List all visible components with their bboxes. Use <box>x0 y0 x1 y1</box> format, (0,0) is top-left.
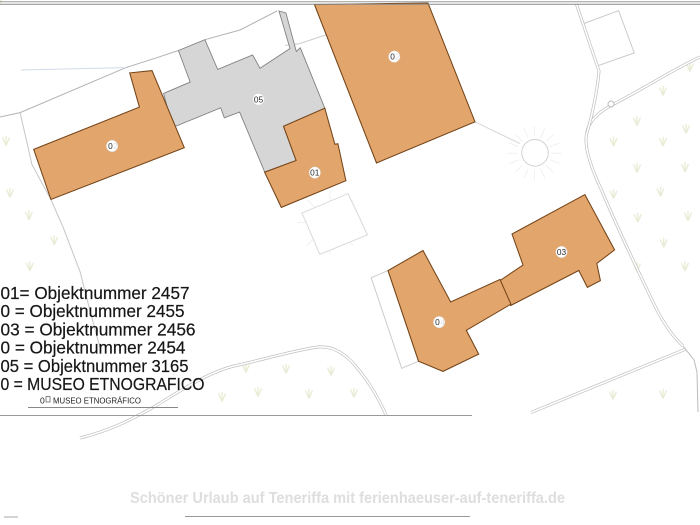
svg-text:Schöner Urlaub auf Teneriffa m: Schöner Urlaub auf Teneriffa mit ferienh… <box>130 490 565 507</box>
svg-text:0: 0 <box>40 396 45 406</box>
svg-text:0 = MUSEO ETNOGRAFICO: 0 = MUSEO ETNOGRAFICO <box>1 374 205 394</box>
svg-text:05 = Objektnummer 3165: 05 = Objektnummer 3165 <box>1 356 189 376</box>
svg-text:03 = Objektnummer 2456: 03 = Objektnummer 2456 <box>1 319 196 339</box>
svg-text:01= Objektnummer 2457: 01= Objektnummer 2457 <box>1 283 190 303</box>
svg-text:01: 01 <box>310 168 320 178</box>
svg-text:0 = Objektnummer 2454: 0 = Objektnummer 2454 <box>1 338 186 358</box>
svg-text:0 = Objektnummer 2455: 0 = Objektnummer 2455 <box>1 301 185 321</box>
svg-text:2: 2 <box>395 52 400 62</box>
svg-text:2: 2 <box>113 141 118 151</box>
svg-text:05: 05 <box>254 94 264 104</box>
svg-text:MUSEO ETNOGRÁFICO: MUSEO ETNOGRÁFICO <box>53 397 141 406</box>
svg-text:4: 4 <box>440 317 445 327</box>
svg-text:03: 03 <box>557 247 567 257</box>
